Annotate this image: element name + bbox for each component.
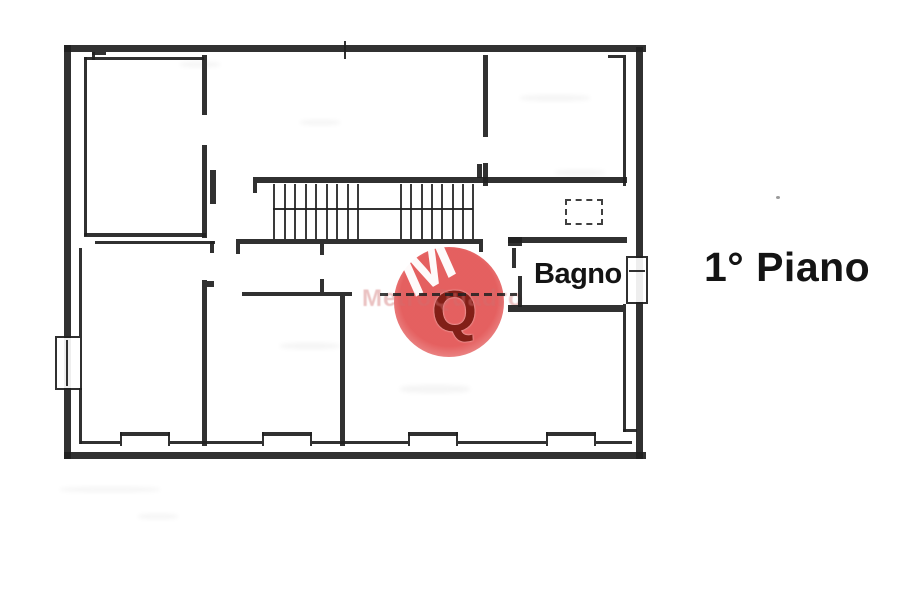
wall-segment [483,163,488,186]
wall-segment [623,304,626,432]
window-sill-end [546,432,548,446]
stair-step-line [441,184,443,239]
wall-segment [483,55,488,137]
stair-step-line [326,184,328,239]
window-sill-end [262,432,264,446]
window-sill-end [168,432,170,446]
wall-segment [508,237,627,243]
wall-segment [636,47,643,459]
wall-segment [253,177,627,183]
window-left [55,336,82,390]
scan-smudge [60,487,160,492]
wall-segment [242,292,352,296]
wall-segment [202,280,207,446]
scan-smudge [280,343,340,349]
scan-smudge [180,62,220,67]
stair-step-line [284,184,286,239]
wall-segment-dashed [380,293,517,296]
stair-step-line [273,184,275,239]
window-opening [408,438,458,446]
wall-segment [84,57,204,60]
wall-segment [477,164,482,178]
wall-segment [79,248,82,336]
wall-segment [344,41,346,59]
scan-smudge [520,95,590,101]
stair-step-line [347,184,349,239]
window-opening [546,438,596,446]
stair-step-line [294,184,296,239]
wall-segment [202,145,207,238]
window-sill [408,432,458,436]
scan-smudge [555,170,605,175]
wall-segment [623,429,637,432]
stair-step-line [462,184,464,239]
stair-step-line [336,184,338,239]
window-opening [262,438,312,446]
window-sill-end [594,432,596,446]
wall-segment [79,388,82,444]
window-sill-end [408,432,410,446]
wall-segment [512,248,516,268]
wall-segment [320,279,324,292]
wall-segment [340,296,345,446]
window-left-mullion [66,340,68,386]
wall-segment [508,305,623,312]
scan-smudge [300,120,340,125]
floor-plan [0,0,900,600]
wall-segment [479,244,483,252]
stair-step-line [305,184,307,239]
wall-segment [623,58,626,186]
wall-segment [236,239,483,244]
wall-segment [253,183,257,193]
fixture-dashed-outline [565,199,603,225]
stair-step-line [472,184,474,239]
wall-segment [210,241,214,253]
window-right-divider [629,270,645,272]
stair-step-line [357,184,359,239]
window-sill [546,432,596,436]
wall-segment [320,244,324,255]
wall-segment [84,233,206,237]
stair-step-line [410,184,412,239]
wall-segment [207,281,214,287]
window-right [626,256,648,304]
wall-segment [518,276,522,307]
window-sill [120,432,170,436]
stair-step-line [315,184,317,239]
scan-dot [776,196,780,199]
window-opening [120,438,170,446]
window-sill-end [120,432,122,446]
wall-segment [508,237,522,246]
wall-segment [64,45,646,52]
wall-segment [92,52,106,55]
wall-segment [210,170,216,204]
wall-segment [64,45,71,459]
scan-smudge [400,385,470,393]
scan-smudge [138,514,178,519]
wall-segment [273,208,473,210]
wall-segment [84,57,87,236]
window-sill-end [456,432,458,446]
floor-plan-image: MetroQuadro M Q Bagno 1° Piano [0,0,900,600]
stair-step-line [452,184,454,239]
window-sill-end [310,432,312,446]
wall-segment [64,452,646,459]
room-label-bagno: Bagno [534,260,622,289]
stair-step-line [421,184,423,239]
stair-step-line [400,184,402,239]
wall-segment [95,241,215,244]
wall-segment [236,244,240,254]
window-sill [262,432,312,436]
stair-step-line [431,184,433,239]
floor-label: 1° Piano [704,247,870,288]
